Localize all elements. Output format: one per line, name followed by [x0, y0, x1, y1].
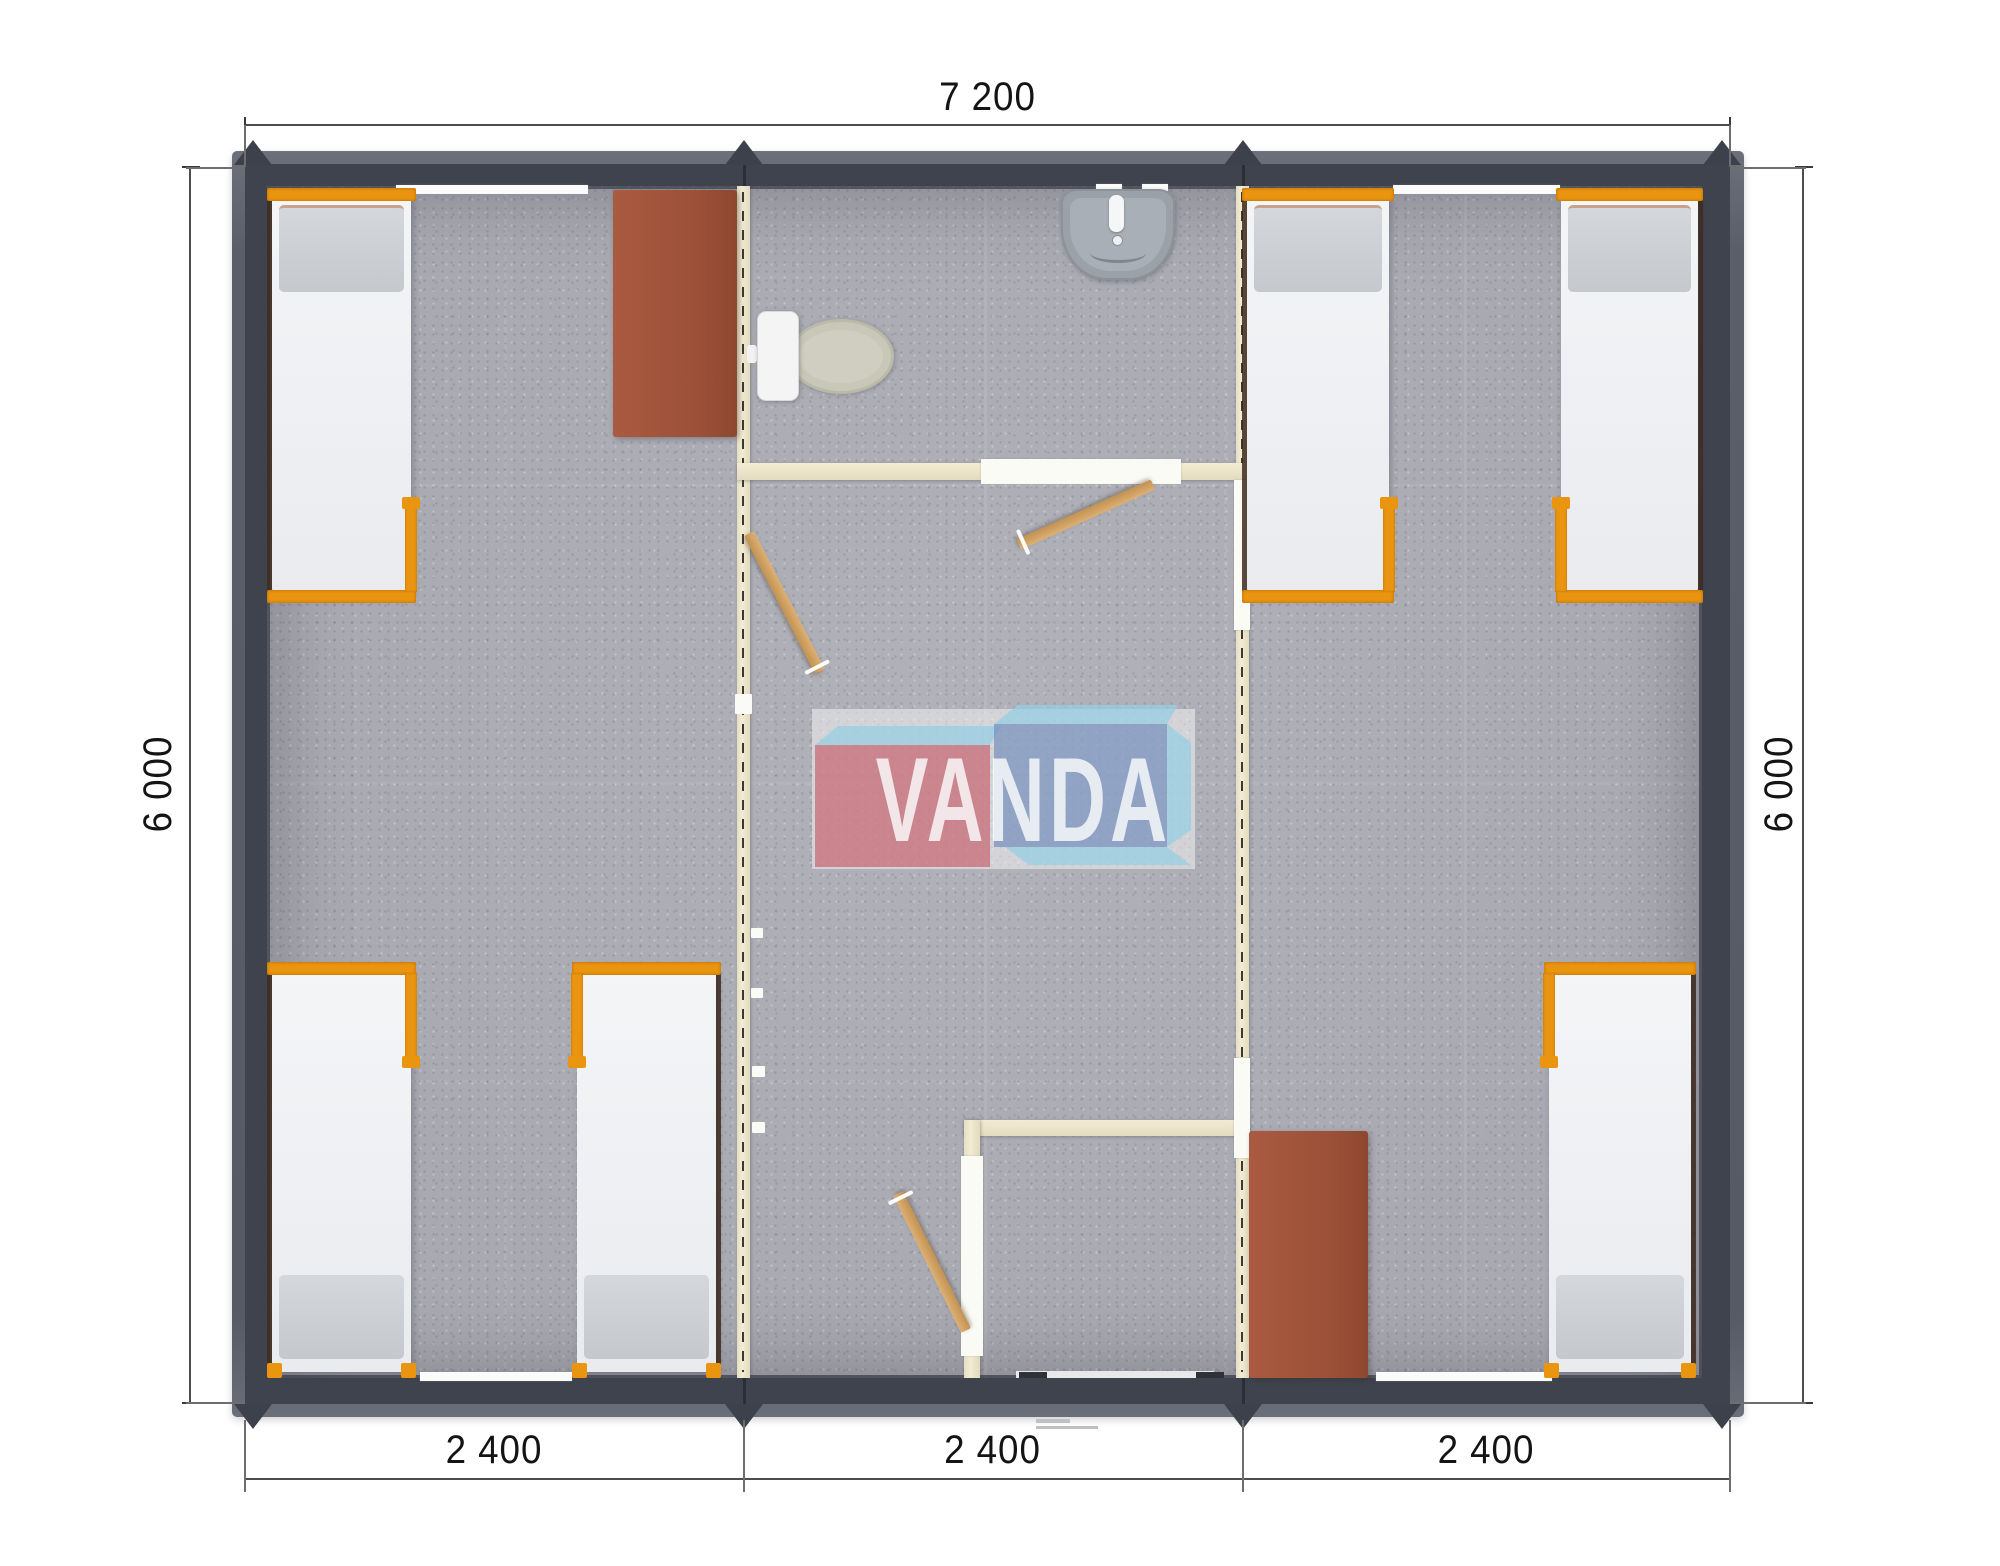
bed-frame-bar	[1556, 188, 1703, 201]
sink	[1061, 189, 1175, 280]
bed-top-right-2	[1557, 188, 1702, 603]
wall-switch	[752, 1122, 765, 1133]
bed-frame-bar	[1242, 590, 1394, 603]
bed-pillow	[1556, 1275, 1684, 1359]
dimension-label-bottom-3: 2 400	[1262, 1430, 1711, 1470]
right-room-service-opening	[1234, 1058, 1250, 1158]
extension-line	[1730, 1402, 1806, 1404]
bed-frame-bar	[267, 962, 416, 975]
vestibule-wall-horizontal	[964, 1120, 1249, 1136]
dimension-line-left	[189, 167, 191, 1404]
window	[420, 1372, 572, 1381]
bed-bottom-left-1	[268, 962, 415, 1378]
module-joint-seam	[743, 164, 746, 188]
entrance-door-hinge	[1019, 1372, 1047, 1378]
extension-line	[186, 167, 245, 169]
extension-line	[186, 1402, 245, 1404]
partition-left-dashed-line	[742, 192, 744, 1372]
bed-pillow	[1254, 205, 1382, 292]
module-joint-marker	[1703, 1404, 1741, 1429]
bed-frame-stub	[1555, 500, 1567, 592]
bed-pillow	[1568, 205, 1691, 292]
module-joint-marker	[1703, 140, 1741, 165]
bed-frame-bar	[1544, 962, 1696, 975]
desk-top-left	[613, 190, 737, 437]
bed-top-left	[268, 188, 415, 603]
dimension-label-bottom-2: 2 400	[763, 1430, 1222, 1470]
dimension-label-right: 6 000	[1759, 692, 1799, 876]
vanda-watermark: VANDA	[810, 703, 1196, 871]
dimension-label-bottom-1: 2 400	[265, 1430, 723, 1470]
module-joint-marker	[725, 140, 763, 165]
wall-switch	[752, 1066, 765, 1077]
bed-foot	[401, 1363, 416, 1378]
toilet	[788, 319, 894, 394]
bed-foot	[1544, 1363, 1559, 1378]
entrance-step	[1036, 1426, 1098, 1429]
bed-frame-stub	[571, 973, 583, 1065]
bed-bottom-left-2	[573, 962, 720, 1378]
module-joint-marker	[1224, 140, 1262, 165]
bed-frame-bar	[1242, 188, 1394, 201]
dimension-label-top: 7 200	[304, 77, 1670, 117]
bed-frame-stub	[1383, 500, 1395, 592]
wall-switch	[751, 928, 763, 938]
bed-pillow	[584, 1275, 709, 1359]
bed-frame-bar	[572, 962, 721, 975]
extension-line	[1729, 125, 1731, 167]
extension-line	[244, 125, 246, 167]
extension-line	[1730, 167, 1806, 169]
bed-frame-stub	[405, 500, 417, 592]
left-room-door-jamb	[735, 694, 752, 714]
sink-overflow-line	[1090, 243, 1146, 263]
extension-line	[1729, 1420, 1731, 1492]
entrance-step	[1036, 1419, 1070, 1423]
dimension-line-bottom	[245, 1478, 1730, 1480]
bed-foot	[572, 1363, 587, 1378]
sink-faucet	[1109, 195, 1124, 232]
toilet-pipe	[747, 345, 757, 363]
logo-cube-flap	[994, 705, 1178, 724]
bed-pillow	[279, 205, 404, 292]
window	[396, 185, 588, 194]
toilet-tank	[757, 311, 799, 401]
wall-switch	[751, 988, 763, 998]
entrance-door-hinge	[1196, 1372, 1224, 1378]
module-joint-marker	[234, 1404, 272, 1429]
module-joint-marker	[234, 140, 272, 165]
bed-bottom-right	[1545, 962, 1695, 1378]
bed-frame-bar	[267, 188, 416, 201]
module-joint-seam	[1242, 164, 1245, 188]
bed-foot	[1681, 1363, 1696, 1378]
bed-frame-stub	[1543, 973, 1555, 1065]
floor-plan-canvas: VANDA 7 200 6 000 6 000 2 400 2 400 2 40…	[0, 0, 2000, 1566]
extension-line	[1242, 1420, 1244, 1492]
bed-top-right-1	[1243, 188, 1393, 603]
window	[1393, 185, 1560, 194]
dimension-label-left: 6 000	[138, 692, 178, 876]
window	[1376, 1372, 1552, 1381]
bed-foot	[706, 1363, 721, 1378]
dimension-line-top	[245, 124, 1730, 126]
dimension-line-right	[1802, 167, 1804, 1404]
bed-frame-bar	[267, 590, 416, 603]
bed-pillow	[279, 1275, 404, 1359]
extension-line	[743, 1420, 745, 1492]
bed-frame-stub	[405, 973, 417, 1065]
bed-frame-bar	[1556, 590, 1703, 603]
desk-bottom-right	[1249, 1131, 1368, 1378]
module-joint-seam	[743, 1378, 746, 1404]
bed-foot	[267, 1363, 282, 1378]
module-joint-seam	[1242, 1378, 1245, 1404]
watermark-text: VANDA	[876, 737, 1131, 863]
extension-line	[244, 1420, 246, 1492]
